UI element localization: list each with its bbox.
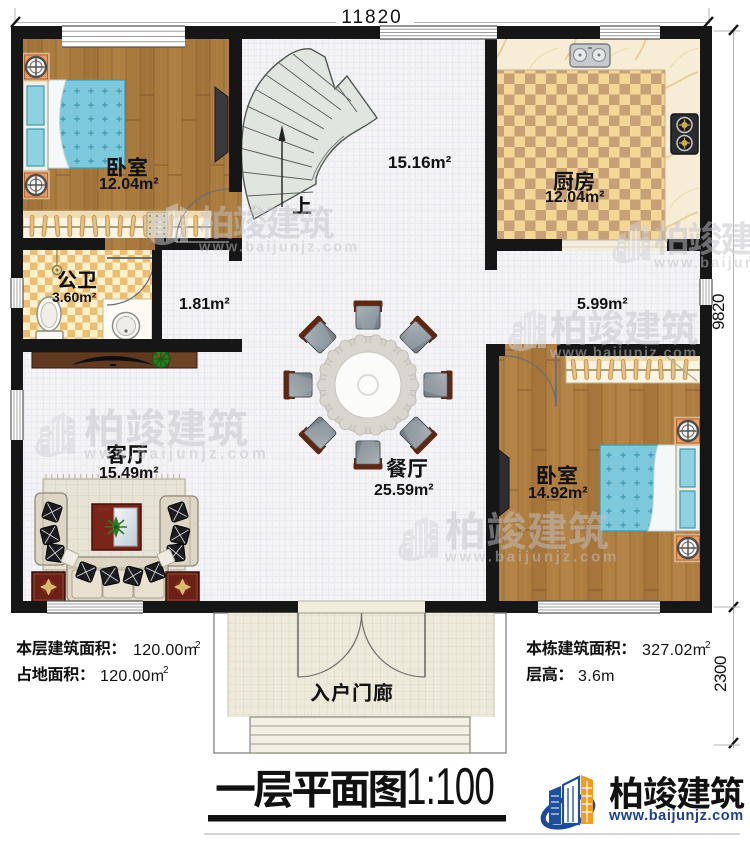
svg-text:www.baijunjz.com: www.baijunjz.com [608, 808, 744, 824]
svg-text:15.49m²: 15.49m² [99, 465, 159, 482]
svg-text:www.baijunjz.com: www.baijunjz.com [444, 549, 619, 566]
svg-text:2300: 2300 [711, 656, 730, 692]
svg-text:120.00m: 120.00m [100, 668, 164, 685]
svg-text:www.baijunjz.com: www.baijunjz.com [549, 346, 698, 362]
svg-text:3.60m²: 3.60m² [52, 289, 97, 305]
svg-text:25.59m²: 25.59m² [374, 482, 434, 499]
svg-text:1:100: 1:100 [406, 758, 494, 816]
svg-text:5.99m²: 5.99m² [577, 296, 628, 313]
svg-text:2: 2 [705, 640, 711, 651]
svg-text:3.6m: 3.6m [578, 668, 615, 685]
svg-text:11820: 11820 [341, 7, 402, 28]
svg-text:1.81m²: 1.81m² [179, 296, 230, 313]
svg-text:9820: 9820 [709, 294, 728, 330]
svg-text:327.02m: 327.02m [642, 642, 706, 659]
svg-text:www.baijunjz.com: www.baijunjz.com [83, 446, 269, 463]
svg-text:12.04m²: 12.04m² [99, 176, 159, 193]
svg-text:12.04m²: 12.04m² [545, 189, 605, 206]
svg-text:14.92m²: 14.92m² [528, 485, 588, 502]
svg-text:www.baijunjz.com: www.baijunjz.com [198, 240, 359, 256]
svg-text:2: 2 [195, 640, 201, 651]
svg-text:2: 2 [163, 665, 169, 676]
svg-text:www.baijunjz.com: www.baijunjz.com [653, 256, 750, 272]
svg-text:15.16m²: 15.16m² [388, 153, 452, 172]
svg-text:120.00m: 120.00m [133, 642, 197, 659]
